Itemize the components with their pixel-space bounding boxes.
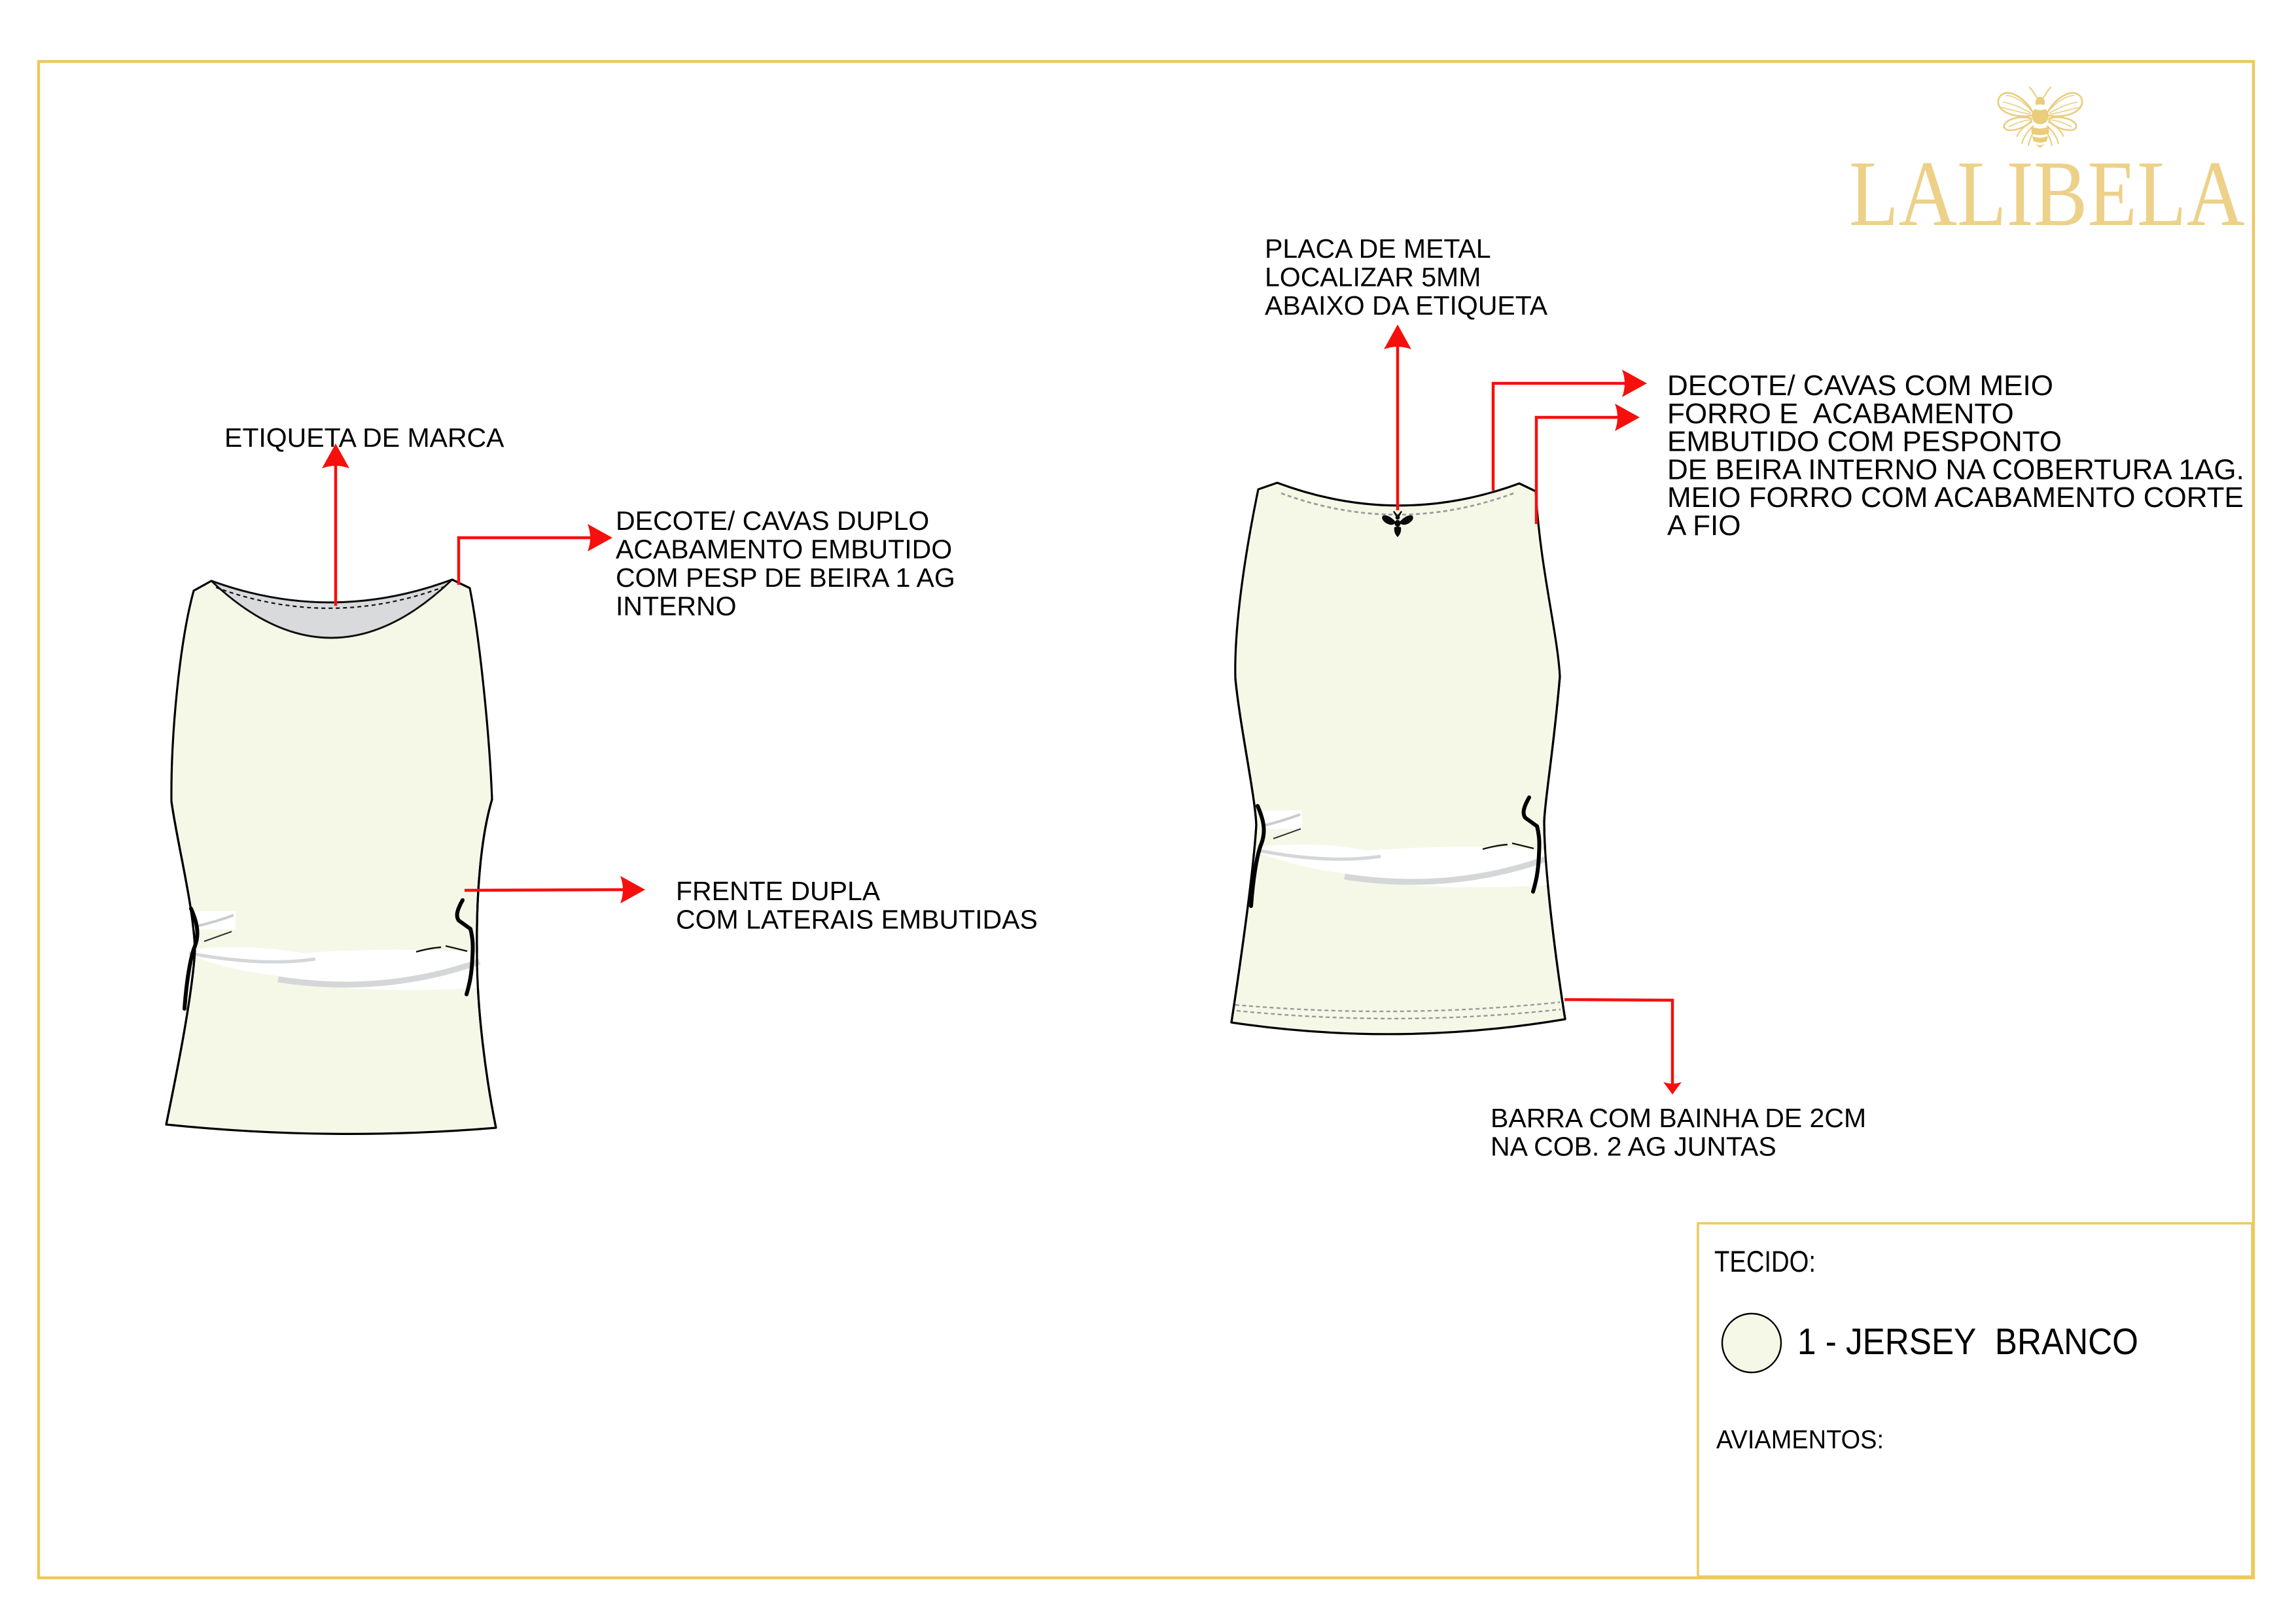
- svg-text:ETIQUETA DE MARCA: ETIQUETA DE MARCA: [224, 423, 504, 453]
- svg-text:LALIBELA: LALIBELA: [1849, 142, 2245, 246]
- svg-text:AVIAMENTOS:: AVIAMENTOS:: [1716, 1425, 1884, 1454]
- svg-text:1 - JERSEY BRANCO: 1 - JERSEY BRANCO: [1797, 1321, 2138, 1363]
- svg-text:TECIDO:: TECIDO:: [1714, 1245, 1816, 1278]
